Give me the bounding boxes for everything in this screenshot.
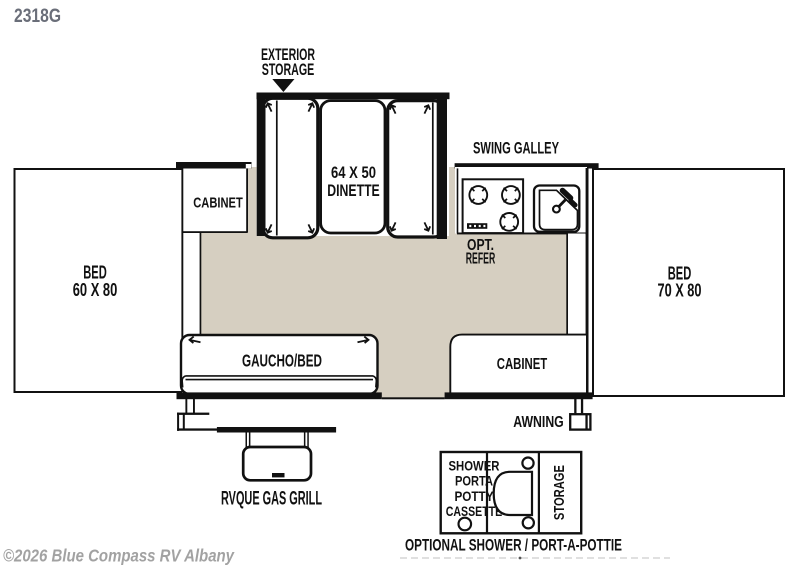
svg-text:©2026 Blue Compass RV Albany: ©2026 Blue Compass RV Albany (3, 545, 235, 565)
svg-text:CABINET: CABINET (497, 356, 548, 373)
svg-text:70 X 80: 70 X 80 (658, 280, 702, 301)
svg-text:SWING GALLEY: SWING GALLEY (473, 139, 559, 157)
svg-text:CASSETTE: CASSETTE (446, 504, 503, 519)
svg-text:STORAGE: STORAGE (552, 465, 568, 520)
svg-text:SHOWER: SHOWER (449, 458, 500, 473)
svg-text:POTTY: POTTY (455, 489, 494, 504)
svg-text:CABINET: CABINET (193, 195, 243, 212)
svg-text:RVQUE GAS GRILL: RVQUE GAS GRILL (221, 489, 322, 510)
svg-text:OPTIONAL SHOWER / PORT-A-POTTI: OPTIONAL SHOWER / PORT-A-POTTIE (405, 536, 622, 555)
svg-text:PORTA: PORTA (455, 474, 493, 489)
svg-text:64 X 50: 64 X 50 (331, 164, 376, 182)
svg-text:REFER: REFER (466, 251, 496, 268)
svg-text:STORAGE: STORAGE (262, 60, 315, 79)
svg-text:GAUCHO/BED: GAUCHO/BED (242, 351, 322, 371)
svg-text:2318G: 2318G (14, 6, 61, 27)
svg-text:DINETTE: DINETTE (327, 182, 380, 200)
svg-text:60 X 80: 60 X 80 (73, 279, 118, 300)
svg-text:AWNING: AWNING (513, 414, 564, 431)
